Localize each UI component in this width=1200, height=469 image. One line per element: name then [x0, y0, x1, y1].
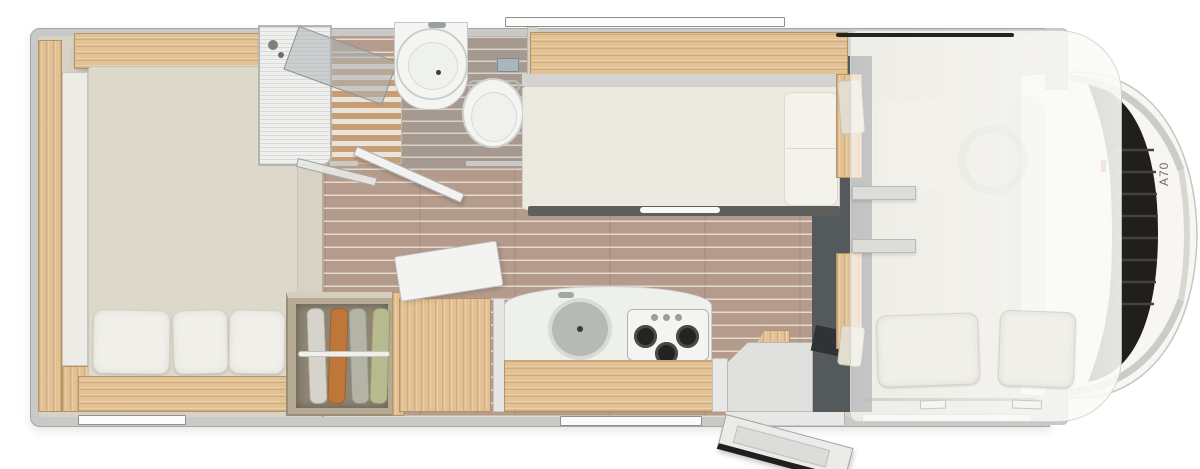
toilet-lid	[471, 92, 517, 142]
alcove-handle-tab-1	[920, 400, 946, 410]
hob-knob-3	[675, 314, 682, 321]
entrance-step	[727, 342, 813, 412]
bedroom-overhead-locker	[74, 33, 262, 69]
faucet-icon	[428, 22, 446, 28]
counter-side-panel-right	[712, 358, 728, 412]
overhead-shelf	[530, 32, 848, 78]
single-bed-pillow	[784, 92, 838, 206]
bathroom-doorway-ledge-left	[330, 161, 358, 166]
rear-bed-pillow-2	[172, 309, 229, 374]
alcove-front-edge-line	[836, 33, 1014, 37]
hob-burner-right	[676, 325, 699, 348]
washbasin-drain	[436, 70, 441, 75]
washbasin-bowl	[408, 42, 458, 90]
alcove-pillow-1	[876, 312, 980, 388]
alcove-handle-tab-2	[1012, 399, 1042, 409]
sink-faucet-icon	[558, 292, 574, 298]
single-bed-pillow-seam	[786, 148, 836, 149]
shower-head-icon	[268, 40, 278, 50]
single-bed-base-highlight	[640, 207, 720, 213]
bedroom-left-cabinet	[38, 40, 62, 412]
bedroom-tall-cabinet-door	[62, 72, 88, 366]
window-bottom-mid	[560, 416, 702, 426]
motorhome-floorplan: A70	[0, 0, 1200, 469]
wall-control-panel	[497, 58, 519, 72]
model-label: A70	[1157, 162, 1171, 186]
rear-bed-frame-front	[78, 376, 298, 412]
alcove-ladder-rung-1	[852, 186, 916, 200]
hob-burner-left	[634, 325, 657, 348]
sink-drain	[577, 326, 583, 332]
window-bottom-left	[78, 415, 186, 425]
hob-knob-2	[663, 314, 670, 321]
wardrobe-rail	[298, 351, 390, 357]
rear-bed-pillow-1	[92, 309, 170, 374]
alcove-pillow-2	[998, 310, 1077, 389]
window-top	[505, 17, 785, 27]
rear-bed-pillow-3	[228, 310, 285, 375]
refrigerator	[399, 298, 491, 412]
hob-knob-1	[651, 314, 658, 321]
kitchen-counter-front	[504, 360, 726, 412]
alcove-ladder-rung-2	[852, 239, 916, 253]
